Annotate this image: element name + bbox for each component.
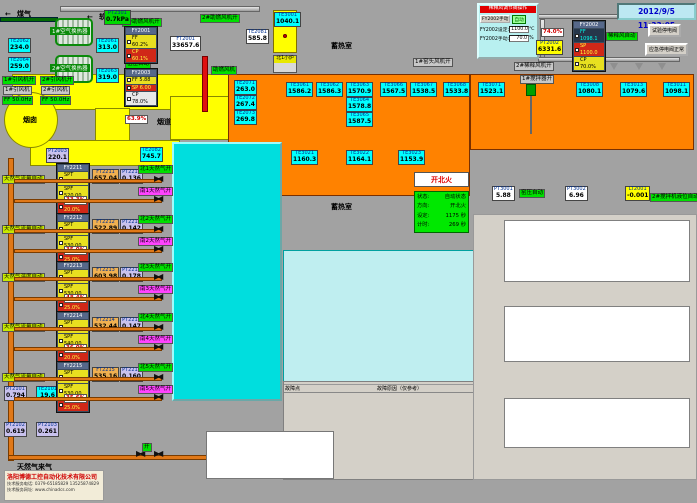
gas-branch-pipe xyxy=(14,297,162,301)
instrument-value: 313.0 xyxy=(98,45,117,52)
gas-branch-valve[interactable]: ▶◀ xyxy=(154,343,160,351)
instrument-te3022: TE30221164.1 xyxy=(346,150,373,165)
instrument-te2062: TE2062234.0 xyxy=(8,38,31,53)
combustion-fan-riser xyxy=(202,56,208,112)
checkbox-icon[interactable] xyxy=(59,205,63,209)
gas-branch-pipe xyxy=(14,249,162,253)
reversal-line-key: 方向: xyxy=(417,202,429,211)
gas-branch-valve[interactable]: ▶◀ xyxy=(154,225,160,233)
mimic-label: 助燃风机 xyxy=(211,66,237,75)
mimic-label: 1#搅拌器开 xyxy=(520,75,554,84)
controller-fy2003: FY2003FF 5.88SP 6.00CP 78.0% xyxy=(124,68,158,107)
instrument-ft2001: FT200133657.6 xyxy=(170,36,201,51)
reversal-line-value: 开北火 xyxy=(450,202,466,211)
reversal-line-value: 269 秒 xyxy=(449,221,466,230)
gas-inlet-valve-status: 开 xyxy=(142,443,152,452)
instrument-te3071: TE30711523.1 xyxy=(478,82,505,97)
instrument-value: 1079.6 xyxy=(622,89,645,96)
thermocouple-dot xyxy=(283,34,287,38)
dilution-window-title: 稀释风调节阀操作 xyxy=(480,6,536,13)
controller-tag: FY2215 xyxy=(58,363,88,369)
checkbox-icon[interactable] xyxy=(59,353,63,357)
vendor-company: 洛阳博德工控自动化技术有限公司 xyxy=(7,472,101,481)
instrument-te2082: TE2082745.7 xyxy=(140,147,163,162)
mimic-label: 天然气来气 xyxy=(16,463,53,472)
instrument-value: 1587.5 xyxy=(348,119,371,126)
gas-branch-pipe xyxy=(14,179,162,183)
mimic-label: 煤气 xyxy=(16,10,32,19)
checkbox-icon[interactable] xyxy=(575,62,579,66)
fy2002-auto-indicator: 自动 xyxy=(512,15,526,24)
mimic-label: 蓄热室 xyxy=(330,42,353,51)
instrument-value: 1080.1 xyxy=(578,89,601,96)
controller-row: SP 6.00 xyxy=(126,85,156,92)
mimic-label: 2#引风机 xyxy=(41,86,70,95)
instrument-value: 263.0 xyxy=(236,87,255,94)
checkbox-icon[interactable] xyxy=(59,241,63,245)
instrument-value: 5.88 xyxy=(494,193,513,200)
controller-fy2002: FY2002FF 1098.1SP 1100.0CP 70.0% xyxy=(572,20,606,72)
instrument-te3013: TE30131079.6 xyxy=(620,82,647,97)
instrument-value: 1040.1 xyxy=(276,19,299,26)
controller-row: CP 60.1% xyxy=(126,49,156,62)
gas-branch-pipe xyxy=(14,327,162,331)
instrument-value: 1098.1 xyxy=(665,89,688,96)
mimic-label: 2#搅拌机液位自动 xyxy=(650,193,697,202)
instrument-value: 259.0 xyxy=(10,64,29,71)
instrument-te3011: TE30111098.1 xyxy=(663,82,690,97)
vendor-logo: 洛阳博德工控自动化技术有限公司 技术服务电话: 0379-65185829 13… xyxy=(4,470,104,501)
instrument-te2081: TE2081585.8 xyxy=(246,29,269,44)
mimic-label: ← xyxy=(86,13,94,22)
air-exchanger-1-label: 1#空气换热器 xyxy=(50,27,90,35)
trend-chart-level xyxy=(478,218,694,282)
reversal-status-panel: 状态:自动状态 方向:开北火 设定:1175 秒 计时:269 秒 xyxy=(414,191,469,233)
mimic-label: ← xyxy=(4,10,12,19)
controller-fy2214: FY2214SPT 1590.0SPF 540.00CP 20.0% xyxy=(56,311,90,363)
instrument-te3061: TE30611586.2 xyxy=(286,82,313,97)
controller-fy2212: FY2212SPT 1570.0SPF 530.00CP 25.0% xyxy=(56,213,90,265)
instrument-value: 319.0 xyxy=(98,75,117,82)
gas-main-pipe xyxy=(8,158,14,461)
instrument-te3065: TE30651587.5 xyxy=(346,112,373,127)
instrument-value: 1538.5 xyxy=(412,89,435,96)
mimic-label: 烟道 xyxy=(156,118,172,127)
trend-chart-pressure xyxy=(478,304,694,362)
instrument-te3062: TE30621586.3 xyxy=(316,82,343,97)
controller-tag: FY2001 xyxy=(126,28,156,34)
mimic-label: 烟囱 xyxy=(22,116,38,125)
instrument-value: 585.8 xyxy=(248,36,267,43)
reversal-line-value: 自动状态 xyxy=(445,193,466,202)
controller-tag: FY2211 xyxy=(58,165,88,171)
instrument-value: 267.4 xyxy=(236,102,255,109)
burner-indicators xyxy=(274,63,296,65)
mimic-label: 1#引风机 xyxy=(3,86,32,95)
north-gas-valve-status: 北5天然气开 xyxy=(138,363,173,372)
checkbox-icon[interactable] xyxy=(59,255,63,259)
controller-row: CP 70.0% xyxy=(574,57,604,70)
chart-plot[interactable] xyxy=(504,398,690,448)
checkbox-icon[interactable] xyxy=(575,34,579,38)
controller-tag: FY2212 xyxy=(58,215,88,221)
instrument-value: 745.7 xyxy=(142,154,161,161)
burner-gas-control-window xyxy=(172,142,282,401)
checkbox-icon[interactable] xyxy=(59,389,63,393)
gas-branch-pipe xyxy=(14,377,162,381)
instrument-value: 1570.9 xyxy=(348,89,371,96)
checkbox-icon[interactable] xyxy=(59,289,63,293)
instrument-value: 1523.1 xyxy=(480,89,503,96)
instrument-te3066: TE30661567.5 xyxy=(380,82,407,97)
instrument-te3001: TE30011040.1 xyxy=(274,12,301,27)
instrument-value: 269.8 xyxy=(236,117,255,124)
instrument-value: 1586.3 xyxy=(318,89,341,96)
instrument-value: 6331.6 xyxy=(538,47,561,54)
controller-row: FF 60.2% xyxy=(126,35,156,48)
instrument-pt2003: PT2003220.1 xyxy=(46,148,69,163)
instrument-pt3002: PT30026.96 xyxy=(565,186,588,201)
gas-branch-valve[interactable]: ▶◀ xyxy=(154,273,160,281)
instrument-value: 6.96 xyxy=(567,193,586,200)
chart-plot[interactable] xyxy=(504,220,690,282)
checkbox-icon[interactable] xyxy=(127,78,131,82)
scada-screen: 1#空气换热器 2#空气换热器 ▶◀ ▶◀ 开 2012/9/5 11:33:0… xyxy=(0,0,697,503)
controller-tag: FY2003 xyxy=(126,70,156,76)
instrument-value: 1586.2 xyxy=(288,89,311,96)
instrument-value: 1578.8 xyxy=(348,104,371,111)
controller-fy2001: FY2001FF 60.2%CP 60.1% xyxy=(124,26,158,64)
controller-tag: FY2214 xyxy=(58,313,88,319)
instrument-value: 234.0 xyxy=(10,45,29,52)
mimic-label: 63.9% xyxy=(125,115,148,124)
instrument-te3023: TE30231153.9 xyxy=(398,150,425,165)
instrument-value: 0.7kPa xyxy=(106,17,129,24)
controller-fy2213: FY2213SPT 1580.0SPF 530.00CP 25.0% xyxy=(56,261,90,313)
alarm-col-point: 故障点 xyxy=(285,385,377,392)
dilution-nozzle-icon xyxy=(658,63,666,70)
fy2002-setpoint-label: FY2002设定: xyxy=(480,26,509,33)
reversal-line-key: 设定: xyxy=(417,212,429,221)
test-shutoff-valve-button[interactable]: 试验停电阀 xyxy=(648,24,681,37)
checkbox-icon[interactable] xyxy=(59,339,63,343)
dilution-nozzle-icon xyxy=(635,63,643,70)
instrument-pt2301: PT23010.7kPa xyxy=(104,10,131,25)
mimic-label: 2#稀释风机开 xyxy=(514,62,554,71)
north-gas-valve-status: 北2天然气开 xyxy=(138,215,173,224)
controller-row: FF 1098.1 xyxy=(574,29,604,42)
instrument-te3021: TE30211160.3 xyxy=(291,150,318,165)
gas-branch-valve[interactable]: ▶◀ xyxy=(154,323,160,331)
mimic-label: 1#引风机开 xyxy=(2,76,36,85)
reversal-line-key: 计时: xyxy=(417,221,429,230)
reversal-line-value: 1175 秒 xyxy=(446,212,466,221)
checkbox-icon[interactable] xyxy=(127,54,131,58)
burner-label: 北1小炉 xyxy=(274,56,296,63)
instrument-te3064: TE30641578.8 xyxy=(346,97,373,112)
fy2002-manual-label: FY2002手动: xyxy=(480,35,509,42)
flue-drop-duct xyxy=(95,108,130,142)
gas-branch-valve[interactable]: ▶◀ xyxy=(154,293,160,301)
instrument-pt2002: PT20026331.6 xyxy=(536,40,563,55)
trend-chart-temperature xyxy=(478,396,694,448)
dilution-valve-window: 稀释风调节阀操作 FY2002手动 自动 FY2002设定: 1100.0 ℃ … xyxy=(477,3,539,59)
fy2002-setpoint-unit: ℃ xyxy=(529,27,534,32)
fy2002-setpoint-input[interactable]: 1100.0 xyxy=(509,26,529,33)
instrument-lt2001: LT2001-0.001 xyxy=(625,186,650,201)
instrument-value: -0.001 xyxy=(627,193,648,200)
mimic-label: 窑压自动 xyxy=(519,189,545,198)
controller-row: CP 78.0% xyxy=(126,92,156,105)
alarm-col-cause: 故障原因（仅参考） xyxy=(377,385,473,392)
instrument-te3063: TE30631570.9 xyxy=(346,82,373,97)
checkbox-icon[interactable] xyxy=(59,191,63,195)
checkbox-icon[interactable] xyxy=(575,48,579,52)
gas-branch-valve[interactable]: ▶◀ xyxy=(154,195,160,203)
checkbox-icon[interactable] xyxy=(59,303,63,307)
chart-plot[interactable] xyxy=(504,306,690,362)
stirrer-icon xyxy=(526,84,536,96)
instrument-te2072: TE2072267.4 xyxy=(234,95,257,110)
mimic-label: 稀释风自动 xyxy=(606,32,638,41)
gas-inlet-valve-2[interactable]: ▶◀ xyxy=(154,450,160,458)
north-gas-valve-status: 北1天然气开 xyxy=(138,165,173,174)
process-status-panel xyxy=(283,250,497,382)
instrument-value: 33657.6 xyxy=(172,43,199,50)
fy2002-manual-input[interactable]: 70.0 xyxy=(509,35,529,42)
gas-branch-valve[interactable]: ▶◀ xyxy=(154,245,160,253)
instrument-pt3001: PT30015.88 xyxy=(492,186,515,201)
mimic-label: FF 50.0Hz xyxy=(2,96,33,105)
vendor-website: 技术服务网址: www.chinadcs.com xyxy=(7,487,101,493)
checkbox-icon[interactable] xyxy=(127,86,131,90)
emergency-shutoff-status-button[interactable]: 应急停电阀正常 xyxy=(645,43,688,56)
instrument-te2064: TE2064259.0 xyxy=(8,57,31,72)
instrument-value: 1533.8 xyxy=(445,89,468,96)
mimic-label: 1#窑头风机开 xyxy=(413,58,453,67)
gas-branch-pipe xyxy=(14,199,162,203)
gas-branch-pipe xyxy=(14,397,162,401)
gas-branch-pipe xyxy=(14,229,162,233)
gas-branch-pipe xyxy=(14,277,162,281)
gas-branch-valve[interactable]: ▶◀ xyxy=(154,373,160,381)
mimic-label: FF 50.0Hz xyxy=(40,96,71,105)
instrument-value: 1160.3 xyxy=(293,157,316,164)
instrument-value: 0.261 xyxy=(38,429,57,436)
instrument-value: 1567.5 xyxy=(382,89,405,96)
mimic-label: 74.0% xyxy=(541,28,564,37)
dilution-air-header xyxy=(538,57,680,62)
checkbox-icon[interactable] xyxy=(127,40,131,44)
air-pipe xyxy=(60,6,260,12)
instrument-te2063: TE2063319.0 xyxy=(96,68,119,83)
checkbox-icon[interactable] xyxy=(59,403,63,407)
datetime-display: 2012/9/5 11:33:05 xyxy=(617,3,696,20)
gas-branch-valve[interactable]: ▶◀ xyxy=(154,393,160,401)
mimic-label: 蓄热室 xyxy=(330,203,353,212)
instrument-te2071: TE2071263.0 xyxy=(234,80,257,95)
gas-branch-valve[interactable]: ▶◀ xyxy=(154,175,160,183)
controller-row: SP 1100.0 xyxy=(574,43,604,56)
controller-fy2215: FY2215SPT 1580.0SPF 530.00CP 25.0% xyxy=(56,361,90,413)
controller-fy2211: FY2211SPT 1560.0SPF 520.00CP 20.0% xyxy=(56,163,90,215)
stirrer-stem xyxy=(530,96,532,134)
gas-branch-pipe xyxy=(14,347,162,351)
controller-tag: FY2002 xyxy=(574,22,604,28)
instrument-value: 0.619 xyxy=(6,429,25,436)
fy2002-manual-button[interactable]: FY2002手动 xyxy=(480,15,510,23)
north-gas-valve-status: 北3天然气开 xyxy=(138,263,173,272)
instrument-te3068: TE30681533.8 xyxy=(443,82,470,97)
air-exchanger-2-label: 2#空气换热器 xyxy=(50,64,90,72)
instrument-te2073: TE2073269.8 xyxy=(234,110,257,125)
instrument-te3008: TE30081080.1 xyxy=(576,82,603,97)
instrument-te2061: TE2061313.0 xyxy=(96,38,119,53)
instrument-value: 1153.9 xyxy=(400,157,423,164)
instrument-value: 220.1 xyxy=(48,155,67,162)
fy2002-manual-unit: % xyxy=(529,36,534,41)
reversal-line-key: 状态: xyxy=(417,193,429,202)
instrument-pt2103: PT21030.261 xyxy=(36,422,59,437)
dilution-nozzle-icon xyxy=(610,63,618,70)
checkbox-icon[interactable] xyxy=(127,97,131,101)
instrument-te3067: TE30671538.5 xyxy=(410,82,437,97)
instrument-pt2102: PT21020.619 xyxy=(4,422,27,437)
north-gas-valve-status: 北4天然气开 xyxy=(138,313,173,322)
alarm-history-list[interactable] xyxy=(206,431,334,479)
reversal-direction-display: 开北火 xyxy=(414,172,469,187)
controller-row: FF 5.88 xyxy=(126,77,156,84)
instrument-value: 1164.1 xyxy=(348,157,371,164)
burner-box: 北1小炉 xyxy=(273,55,297,73)
mimic-label: 2#助燃风机开 xyxy=(200,14,240,23)
controller-tag: FY2213 xyxy=(58,263,88,269)
mimic-label: 2#引风机开 xyxy=(40,76,74,85)
